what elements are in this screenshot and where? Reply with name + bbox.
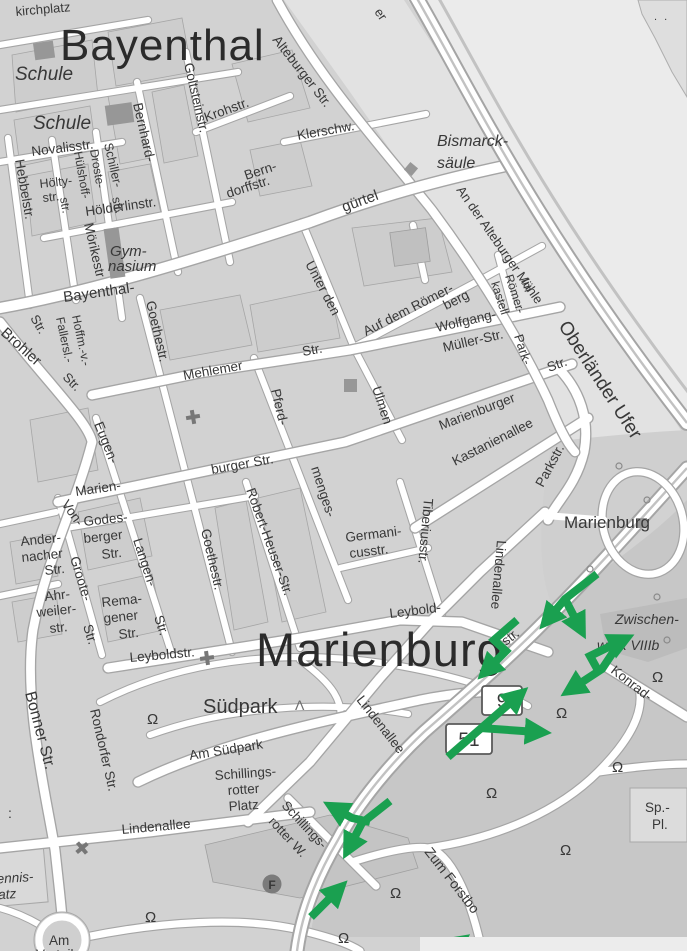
poi-label-schule-1: Schule (15, 64, 73, 85)
tree-icon: Ω (652, 669, 663, 686)
street-label-hoelty-2: str. (42, 189, 60, 205)
large-building (390, 228, 430, 267)
poi-label-gymnasium-2: nasium (108, 258, 156, 275)
street-label-godes-3: Str. (101, 545, 123, 562)
map-dots: : (8, 805, 12, 821)
poi-label-roundabout-2: Verteiler (36, 947, 86, 951)
street-label-schillingsrotter-3: Platz (228, 797, 259, 814)
island-dots: . . (654, 11, 669, 23)
tree-icon: Ω (612, 759, 623, 776)
poi-label-bismarck-2: säule (437, 155, 475, 172)
street-label-ahr-3: str. (49, 619, 68, 636)
district-label-marienburg: Marienburg (256, 623, 504, 676)
district-label-bayenthal: Bayenthal (60, 21, 265, 70)
street-label-schillingsrotter-2: rotter (227, 781, 260, 798)
school-building-2 (105, 102, 135, 126)
facility-f-icon: F (268, 878, 275, 892)
sportplatz-area (630, 788, 687, 842)
tree-icon: Ω (560, 842, 571, 859)
poi-label-schule-2: Schule (33, 113, 91, 134)
tree-icon: Ω (338, 930, 349, 947)
map-edge-band (420, 937, 687, 951)
map-canvas: Ω Ω Ω Ω Ω Ω Ω Ω Ω Λ . . : F 9 51 kirchp (0, 0, 687, 951)
tree-icon: Ω (145, 909, 156, 926)
street-label-rema-3: Str. (118, 625, 140, 642)
area-label-sportplatz-2: Pl. (652, 817, 668, 832)
street-label-droste-3: str. (57, 196, 74, 214)
tree-icon: Ω (556, 705, 567, 722)
poi-label-roundabout-1: Am (49, 933, 69, 948)
area-label-zwischenwerk-1: Zwischen- (614, 611, 679, 627)
conifer-icon: Λ (295, 697, 305, 713)
school-building-1 (33, 41, 55, 61)
street-label-ander-3: Str. (44, 561, 66, 578)
area-label-marienburg-park: Marienburg (564, 513, 650, 532)
building-block (344, 379, 357, 392)
area-label-sportplatz-1: Sp.- (645, 800, 670, 815)
area-label-suedpark: Südpark (203, 696, 278, 718)
tree-icon: Ω (390, 885, 401, 902)
poi-label-tennis-2: platz (0, 886, 17, 903)
tree-icon: Ω (147, 711, 158, 728)
city-map: Ω Ω Ω Ω Ω Ω Ω Ω Ω Λ . . : F 9 51 kirchp (0, 0, 687, 951)
route-arrow-e-branch (480, 728, 537, 732)
poi-label-bismarck-1: Bismarck- (437, 133, 508, 150)
tree-icon: Ω (486, 785, 497, 802)
